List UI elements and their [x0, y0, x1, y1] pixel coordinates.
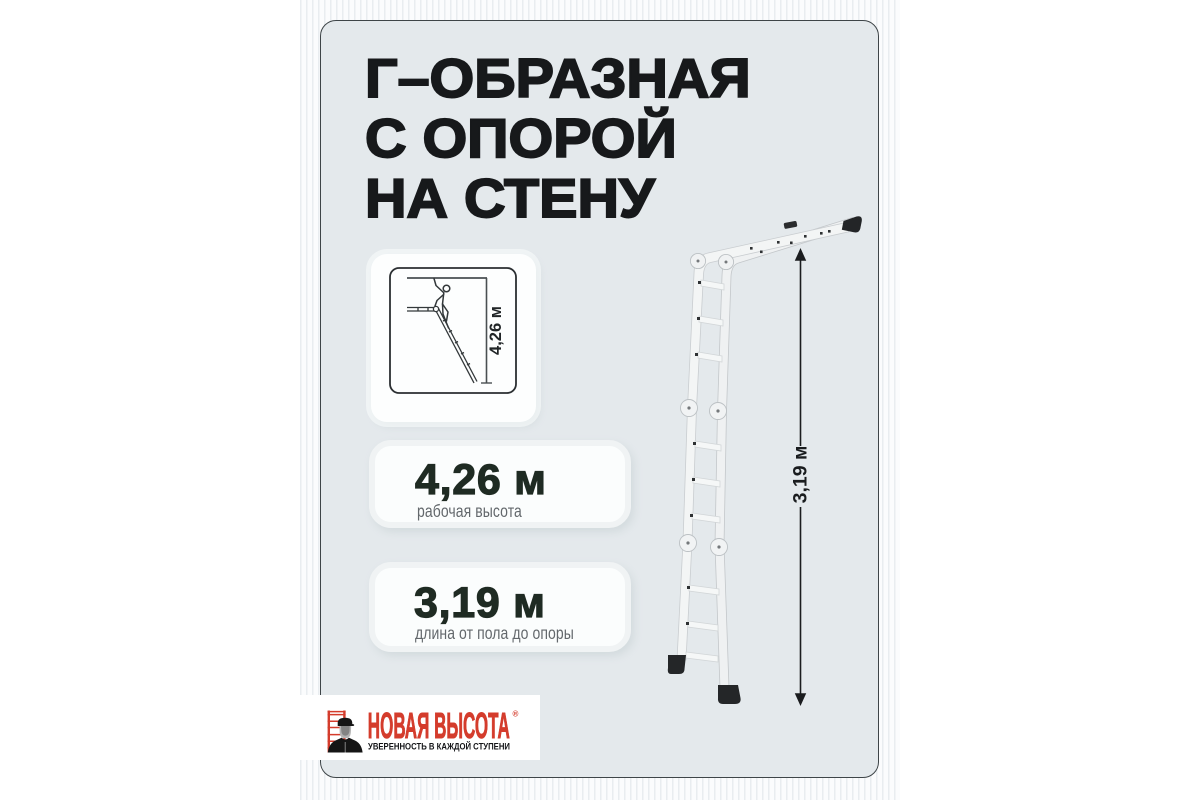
svg-text:®: ® — [513, 710, 519, 719]
svg-text:4,26 м: 4,26 м — [487, 306, 505, 355]
svg-text:3,19 м: 3,19 м — [790, 446, 812, 504]
svg-text:УВЕРЕННОСТЬ В КАЖДОЙ СТУПЕНИ: УВЕРЕННОСТЬ В КАЖДОЙ СТУПЕНИ — [368, 740, 510, 751]
svg-text:НОВАЯ ВЫСОТА: НОВАЯ ВЫСОТА — [368, 705, 510, 746]
